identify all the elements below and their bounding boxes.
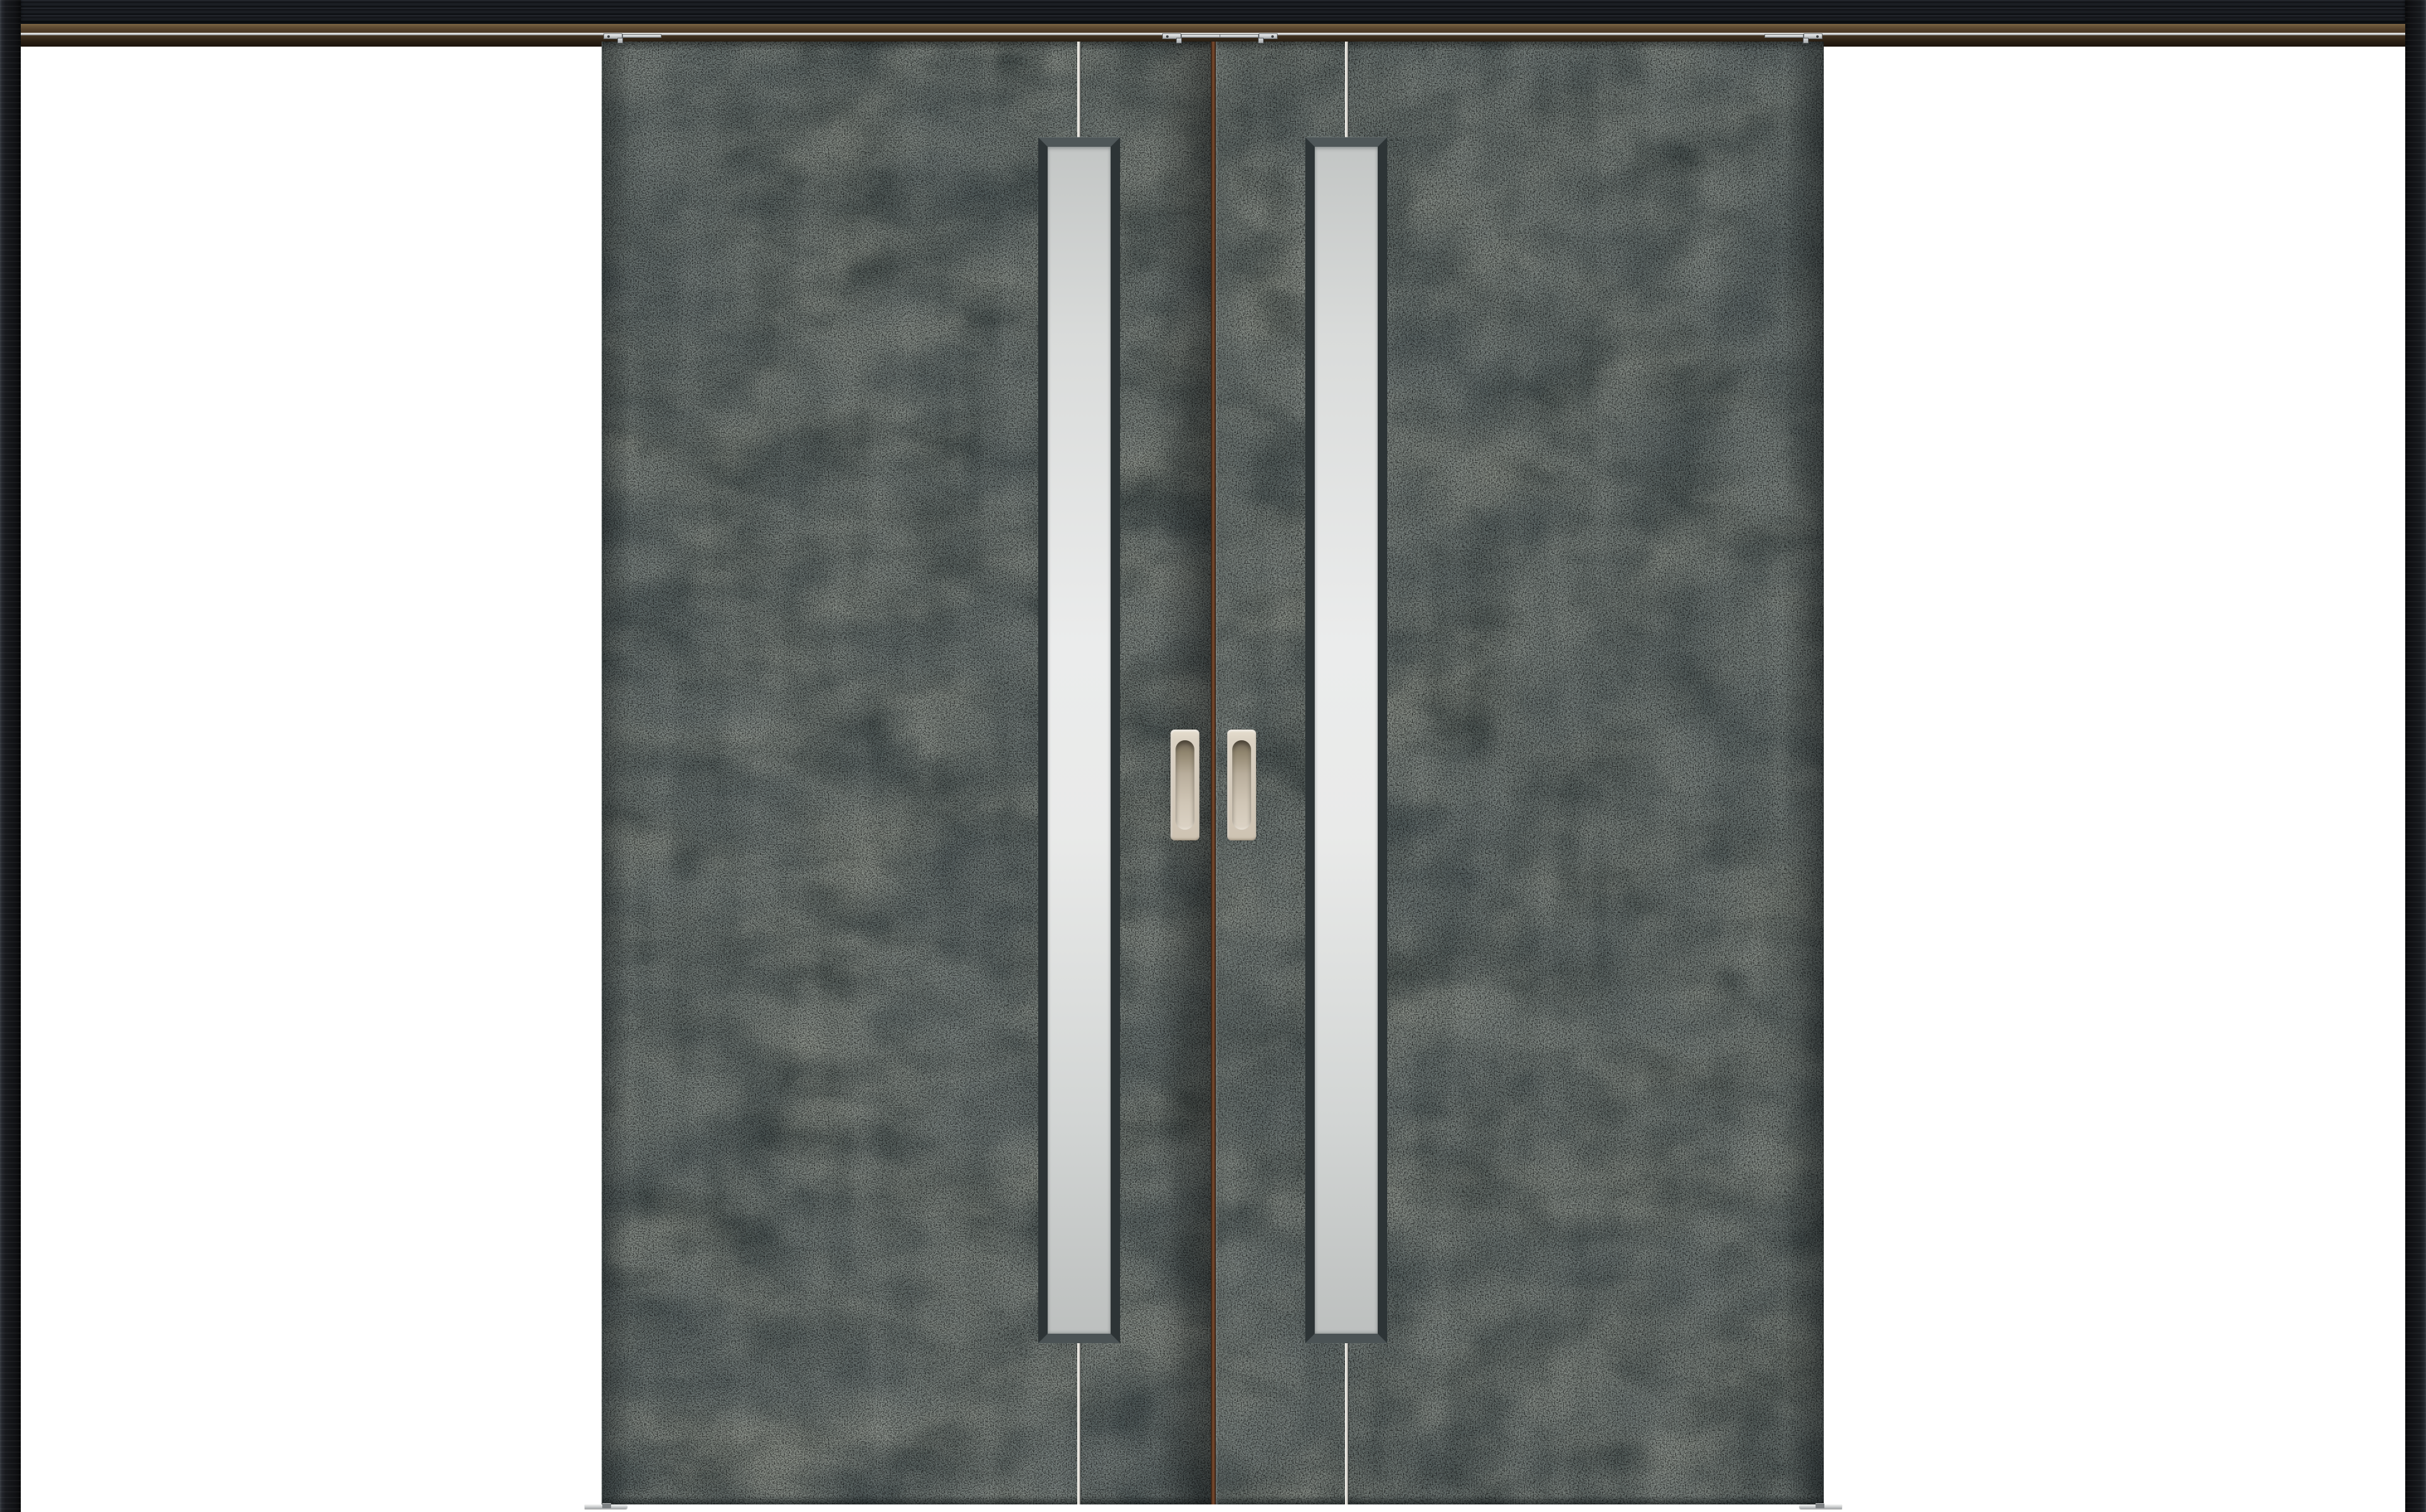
hanger-bracket-inner-left xyxy=(1162,32,1222,43)
handle-recess-right xyxy=(1232,740,1251,830)
glass-slit-left xyxy=(1038,137,1120,1343)
hanger-bracket-inner-right xyxy=(1218,32,1278,43)
accent-line-left-lower xyxy=(1077,1343,1080,1504)
hanger-arm xyxy=(1181,34,1220,38)
accent-line-left-upper xyxy=(1077,42,1080,137)
hanger-bolt xyxy=(1816,35,1819,38)
hanger-pin xyxy=(1258,38,1264,43)
side-post-left xyxy=(0,0,21,1512)
accent-line-right-upper xyxy=(1345,42,1348,137)
hanger-arm xyxy=(622,34,661,38)
recessed-pull-handle-right xyxy=(1227,730,1256,840)
hanger-bolt xyxy=(1166,35,1169,38)
hanger-arm xyxy=(1220,34,1259,38)
hanger-bracket-outer-left xyxy=(604,32,663,43)
hanger-bracket-outer-right xyxy=(1763,32,1822,43)
floor-guide-block xyxy=(602,1503,611,1508)
door-meeting-gap xyxy=(1211,42,1216,1504)
doors-area xyxy=(602,42,1824,1504)
floor-guide-left xyxy=(585,1503,627,1510)
side-post-right xyxy=(2405,0,2426,1512)
track-upper-fascia xyxy=(21,24,2405,33)
hanger-bolt xyxy=(607,35,610,38)
glass-slit-right xyxy=(1305,137,1387,1343)
frosted-glass-pane-left xyxy=(1048,147,1111,1334)
sliding-door-product-image xyxy=(0,0,2426,1512)
recessed-pull-handle-left xyxy=(1170,730,1199,840)
frosted-glass-pane-right xyxy=(1315,147,1378,1334)
door-panel-left xyxy=(602,42,1211,1504)
accent-line-right-lower xyxy=(1345,1343,1348,1504)
handle-recess-left xyxy=(1176,740,1194,830)
hanger-pin xyxy=(617,38,623,43)
hanger-arm xyxy=(1765,34,1804,38)
door-panel-right xyxy=(1216,42,1824,1504)
floor-guide-right xyxy=(1799,1503,1842,1510)
hanger-bolt xyxy=(1271,35,1274,38)
hanger-pin xyxy=(1803,38,1809,43)
hanger-pin xyxy=(1176,38,1182,43)
lintel-beam xyxy=(21,0,2405,24)
floor-guide-block xyxy=(1816,1503,1824,1508)
